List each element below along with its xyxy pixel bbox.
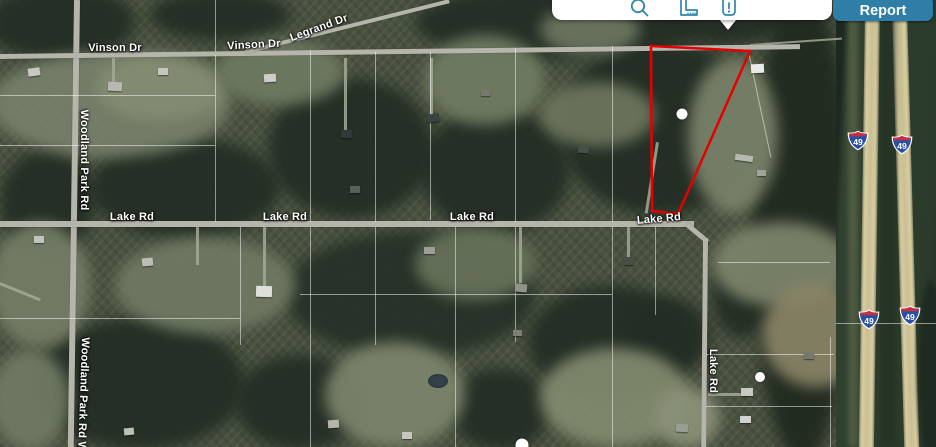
map-marker[interactable] — [755, 372, 765, 382]
parcel-line — [375, 52, 376, 222]
building — [264, 74, 277, 83]
tree-patch — [450, 368, 550, 447]
building — [578, 146, 589, 154]
interstate-49-shield: 49 — [848, 131, 869, 156]
building — [34, 236, 44, 243]
search-button[interactable] — [627, 0, 651, 20]
map-marker[interactable] — [677, 109, 688, 120]
parcel-line — [310, 227, 311, 447]
parcel-line — [515, 48, 516, 222]
building — [328, 420, 340, 429]
parcel-line — [612, 227, 613, 447]
parcel-line — [300, 294, 612, 295]
building — [158, 68, 168, 75]
highway-median — [880, 0, 896, 447]
driveway — [519, 225, 522, 283]
driveway — [112, 58, 115, 84]
grass-patch — [688, 58, 778, 213]
parcel-line — [310, 50, 311, 222]
building — [751, 64, 764, 74]
search-icon — [628, 0, 650, 20]
ruler-icon — [676, 0, 700, 20]
report-button[interactable]: Report — [833, 0, 933, 21]
measure-button[interactable] — [676, 0, 700, 20]
parcel-line — [836, 323, 936, 324]
grass-patch — [655, 388, 720, 447]
road-label: Lake Rd — [263, 211, 307, 223]
interstate-49-shield: 49 — [892, 135, 913, 160]
driveway — [708, 393, 744, 396]
svg-text:49: 49 — [853, 137, 863, 147]
parcel-line — [215, 0, 216, 52]
building — [402, 432, 412, 439]
parcel-line — [430, 52, 431, 220]
building — [350, 186, 360, 193]
road-label: Lake Rd — [110, 211, 154, 223]
building — [757, 170, 766, 176]
building — [623, 257, 634, 265]
tree-patch — [150, 0, 290, 40]
highway-shoulder — [848, 0, 858, 447]
parcel-line — [706, 406, 832, 407]
road-label: Woodland Park Rd — [78, 110, 90, 211]
tree-patch — [918, 280, 936, 447]
building — [142, 258, 154, 267]
building — [427, 113, 440, 122]
road-lake-horizontal — [0, 221, 694, 227]
interstate-highway — [836, 0, 936, 447]
building — [424, 247, 435, 254]
grass-patch — [325, 342, 465, 447]
parcel-line — [0, 145, 215, 146]
highway-roadway-left — [859, 0, 880, 447]
building — [741, 388, 753, 396]
building — [481, 90, 490, 96]
parcel-line — [455, 227, 456, 447]
building — [804, 352, 814, 359]
driveway — [627, 225, 630, 261]
svg-text:49: 49 — [897, 141, 907, 151]
parcel-line — [655, 227, 656, 315]
interstate-49-shield: 49 — [900, 306, 921, 331]
road-label: Lake Rd — [707, 349, 719, 393]
building — [124, 427, 135, 435]
parcel-line — [612, 46, 613, 222]
parcel-line — [375, 227, 376, 345]
svg-text:49: 49 — [905, 312, 915, 322]
parcel-line — [240, 227, 241, 345]
interstate-49-shield: 49 — [859, 310, 880, 335]
driveway — [196, 225, 199, 265]
map-toolbar — [552, 0, 832, 20]
parcel-line — [706, 354, 834, 355]
building — [256, 286, 272, 298]
parcel-line — [0, 95, 215, 96]
parcel-line — [215, 55, 216, 222]
parcel-line — [0, 318, 240, 319]
parcel-line — [718, 262, 830, 263]
driveway — [263, 225, 266, 287]
info-card-icon — [718, 0, 740, 20]
info-button[interactable] — [717, 0, 741, 20]
active-tool-caret — [719, 19, 737, 30]
building — [513, 330, 522, 336]
driveway — [344, 58, 347, 134]
building — [740, 416, 751, 423]
svg-text:49: 49 — [864, 316, 874, 326]
pond — [428, 374, 448, 388]
road-label: Vinson Dr — [88, 42, 142, 54]
parcel-line — [830, 337, 831, 447]
grass-patch — [540, 82, 655, 147]
building — [341, 130, 352, 138]
building — [28, 67, 41, 77]
building — [676, 424, 688, 433]
building — [515, 283, 528, 292]
building — [108, 82, 122, 92]
road-label: Lake Rd — [450, 211, 494, 223]
map[interactable]: Report Vinson DrVinson DrLegrand DrLake … — [0, 0, 936, 447]
map-marker[interactable] — [516, 439, 529, 447]
